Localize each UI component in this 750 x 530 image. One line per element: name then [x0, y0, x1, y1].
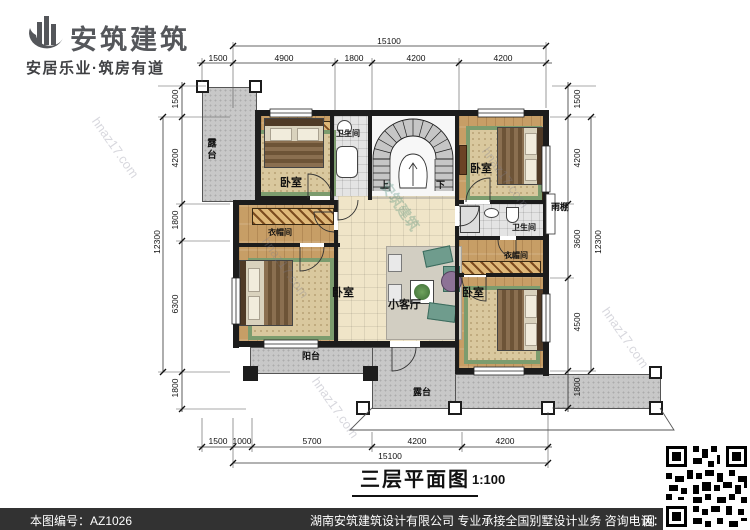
qr-code	[663, 443, 750, 530]
wall	[486, 273, 548, 277]
toilet	[506, 207, 519, 223]
label-bath-right: 卫生间	[512, 222, 536, 233]
terrace-bottom-area-b	[455, 374, 661, 409]
label-bedroom-br: 卧室	[462, 284, 484, 300]
dim-right-seg: 4200	[572, 138, 582, 178]
watermark: hnaz17.com	[309, 374, 362, 441]
bed-bedroom-tl	[264, 118, 324, 168]
dim-bottom-seg: 5700	[292, 436, 332, 446]
dim-left-seg: 1800	[170, 368, 180, 408]
label-living: 小客厅	[388, 296, 421, 312]
plan-title: 三层平面图	[352, 463, 478, 497]
label-bedroom-bl: 卧室	[332, 284, 354, 300]
column	[196, 80, 209, 93]
label-bath-top: 卫生间	[336, 128, 360, 139]
label-balcony: 阳台	[302, 349, 320, 362]
wall	[455, 368, 548, 374]
column	[356, 401, 370, 415]
wall	[233, 200, 338, 205]
dim-top-overall: 15100	[369, 36, 409, 46]
label-terrace-bottom: 露台	[413, 385, 431, 398]
dim-right-overall: 12300	[593, 222, 603, 262]
dim-right-seg: 3600	[572, 219, 582, 259]
wall	[233, 200, 239, 348]
dim-top-seg: 4200	[396, 53, 436, 63]
label-canopy: 雨棚	[551, 200, 569, 213]
wall	[455, 110, 459, 206]
wall	[455, 273, 464, 277]
pillow	[248, 268, 260, 292]
brand-logo-icon	[20, 10, 66, 52]
label-bedroom-tl: 卧室	[280, 174, 302, 190]
label-stairs-down: 下	[436, 178, 445, 191]
dim-bottom-overall: 15100	[370, 451, 410, 461]
label-closet-right: 衣帽间	[504, 250, 528, 261]
wall	[233, 341, 342, 347]
dim-left-seg: 1800	[170, 200, 180, 240]
wall	[342, 341, 390, 347]
column	[363, 366, 378, 381]
footer-bar: 本图编号：AZ1026 湖南安筑建筑设计有限公司 专业承接全国别墅设计业务 咨询…	[0, 508, 750, 530]
dim-left-overall: 12300	[152, 222, 162, 262]
tv-cabinet	[459, 145, 467, 175]
column	[249, 80, 262, 93]
wall	[255, 110, 548, 116]
pillow	[297, 128, 319, 141]
dim-left-seg: 6300	[170, 284, 180, 324]
footer-net-label: 网	[643, 512, 655, 529]
pillow	[525, 159, 537, 181]
wall	[420, 341, 455, 347]
wall	[255, 196, 310, 200]
brand-name: 安筑建筑	[70, 18, 190, 57]
wall	[368, 110, 372, 200]
pillow	[270, 128, 292, 141]
column	[243, 366, 258, 381]
blanket	[265, 141, 323, 167]
armchair	[388, 254, 402, 272]
dim-top-seg: 4900	[264, 53, 304, 63]
pillow	[525, 295, 537, 318]
dim-bottom-seg: 1000	[222, 436, 262, 446]
wall	[455, 226, 459, 373]
wall	[543, 110, 549, 376]
wall	[330, 110, 334, 200]
brand-tagline: 安居乐业·筑房有道	[26, 57, 165, 78]
dim-top-seg: 1500	[198, 53, 238, 63]
pillow	[525, 133, 537, 155]
wall	[455, 236, 500, 240]
pillow	[525, 323, 537, 346]
plan-scale: 1:100	[472, 472, 505, 487]
column	[448, 401, 462, 415]
headboard	[265, 119, 323, 126]
wall	[255, 110, 261, 202]
footer-serial: 本图编号：AZ1026	[30, 512, 132, 529]
shower	[460, 206, 480, 233]
terrace-bottom-area-a	[372, 347, 457, 409]
dim-right-seg: 4500	[572, 302, 582, 342]
dim-bottom-seg: 4200	[397, 436, 437, 446]
sink	[484, 208, 499, 218]
watermark: hnaz17.com	[89, 114, 142, 181]
bathtub	[336, 146, 358, 178]
dim-right-seg: 1500	[572, 79, 582, 119]
bed-bedroom-br	[497, 289, 544, 351]
dim-left-seg: 1500	[170, 79, 180, 119]
headboard	[240, 261, 246, 325]
dim-bottom-seg: 4200	[485, 436, 525, 446]
dim-top-seg: 1800	[334, 53, 374, 63]
dim-right-seg: 1800	[572, 367, 582, 407]
column	[541, 401, 555, 415]
column	[649, 366, 662, 379]
watermark: hnaz17.com	[599, 304, 652, 371]
column	[649, 401, 663, 415]
label-terrace-top: 露台	[203, 138, 217, 161]
wall	[455, 200, 464, 204]
floor-plan-page: 安筑建筑 安居乐业·筑房有道	[0, 0, 750, 530]
blanket	[498, 290, 524, 350]
pillow	[248, 296, 260, 320]
dim-top-seg: 4200	[483, 53, 523, 63]
wardrobe-closet-left	[252, 208, 334, 225]
dim-left-seg: 4200	[170, 138, 180, 178]
wall	[334, 200, 338, 212]
